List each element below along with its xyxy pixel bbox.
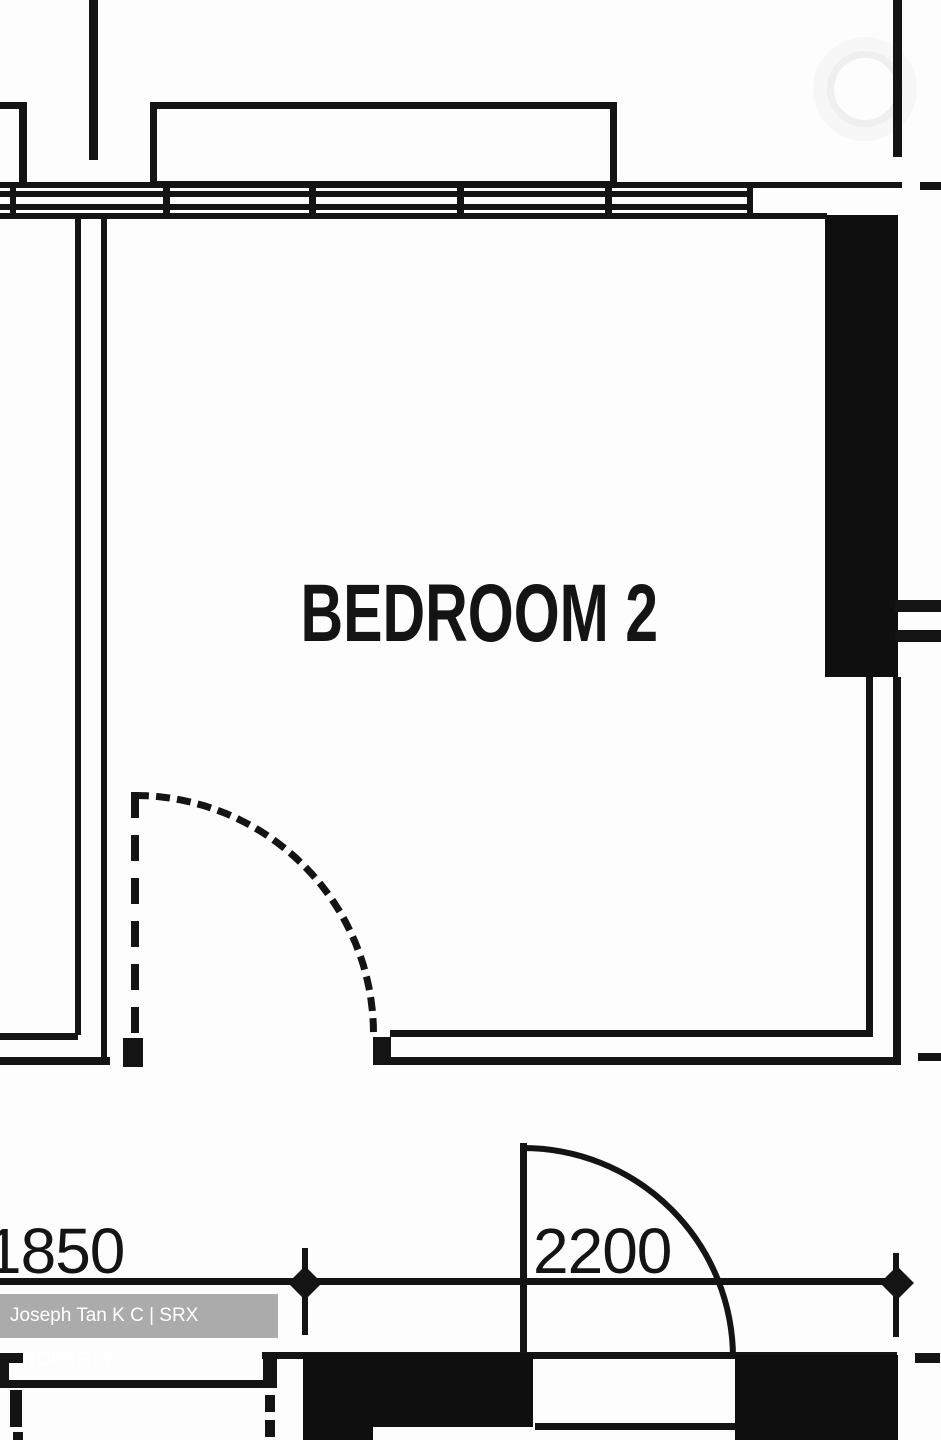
dimension-marker-right — [880, 1266, 914, 1300]
wall-right-outer-line — [893, 677, 901, 1065]
bottom-band-left-jamb-h — [0, 1353, 23, 1363]
dimension-marker-left — [288, 1266, 322, 1300]
bottom-door-opening-sill — [535, 1423, 735, 1430]
right-ledge-bar-1 — [895, 600, 941, 612]
window-glass-line-2 — [0, 204, 751, 210]
bottom-band-left-door-dash — [13, 1432, 23, 1440]
ledge-outline — [150, 102, 617, 188]
window-mullion-5 — [605, 182, 612, 219]
window-glass-line-1 — [0, 191, 751, 197]
bedroom-bottom-wall-jamb — [373, 1037, 391, 1065]
wall-dash-bottom-right-edge — [918, 1053, 941, 1061]
bottom-wall-solid-block-b — [735, 1355, 898, 1440]
floorplan-canvas: BEDROOM 2 1850 2200 Joseph Tan K C | SRX… — [0, 0, 941, 1440]
window-mullion-2 — [163, 182, 170, 219]
bottom-band-dash-v-2 — [265, 1420, 275, 1437]
right-ledge-bar-2 — [895, 630, 941, 642]
left-room-bottom-wall-inner — [0, 1033, 78, 1040]
bottom-wall-solid-block-a-ext — [303, 1427, 373, 1440]
room-label-bedroom2: BEDROOM 2 — [300, 570, 611, 658]
wall-left-partition-inner — [101, 218, 107, 1060]
wall-left-partition-outer — [75, 218, 81, 1035]
bedroom-bottom-wall-inner — [390, 1030, 873, 1037]
wall-right-inner-line — [866, 677, 873, 1033]
window-mullion-3 — [309, 182, 316, 219]
wall-top-left-vertical — [89, 0, 98, 160]
ledge-left-partial-side — [19, 102, 27, 188]
bottom-band-jamb-mid — [263, 1353, 277, 1388]
wall-dash-bottom-band-edge — [915, 1353, 940, 1363]
wall-top-right-vertical — [893, 0, 902, 157]
dimension-value-2200: 2200 — [533, 1214, 671, 1288]
window-end-mullion — [747, 182, 753, 219]
dimension-line — [0, 1278, 897, 1285]
window-mullion-1 — [10, 182, 16, 219]
bottom-band-left-wall-line — [8, 1380, 263, 1388]
window-wall-top-line — [0, 182, 902, 188]
bottom-wall-solid-block-a — [303, 1353, 533, 1427]
bedroom-door-hinge-jamb — [123, 1038, 143, 1067]
dimension-value-1850: 1850 — [0, 1214, 124, 1288]
wall-right-solid-fill — [825, 215, 898, 677]
agent-watermark: Joseph Tan K C | SRX PROPERTY — [0, 1294, 278, 1338]
wall-dash-top-right-edge — [920, 182, 941, 190]
logo-circle-watermark-icon — [827, 51, 903, 127]
window-mullion-4 — [457, 182, 464, 219]
bedroom-bottom-wall-outer — [390, 1057, 901, 1065]
window-wall-bottom-line — [0, 213, 827, 219]
bottom-band-left-door-bar — [10, 1390, 22, 1427]
left-room-bottom-wall-outer — [0, 1057, 110, 1065]
bottom-band-dash-v-1 — [265, 1395, 275, 1412]
